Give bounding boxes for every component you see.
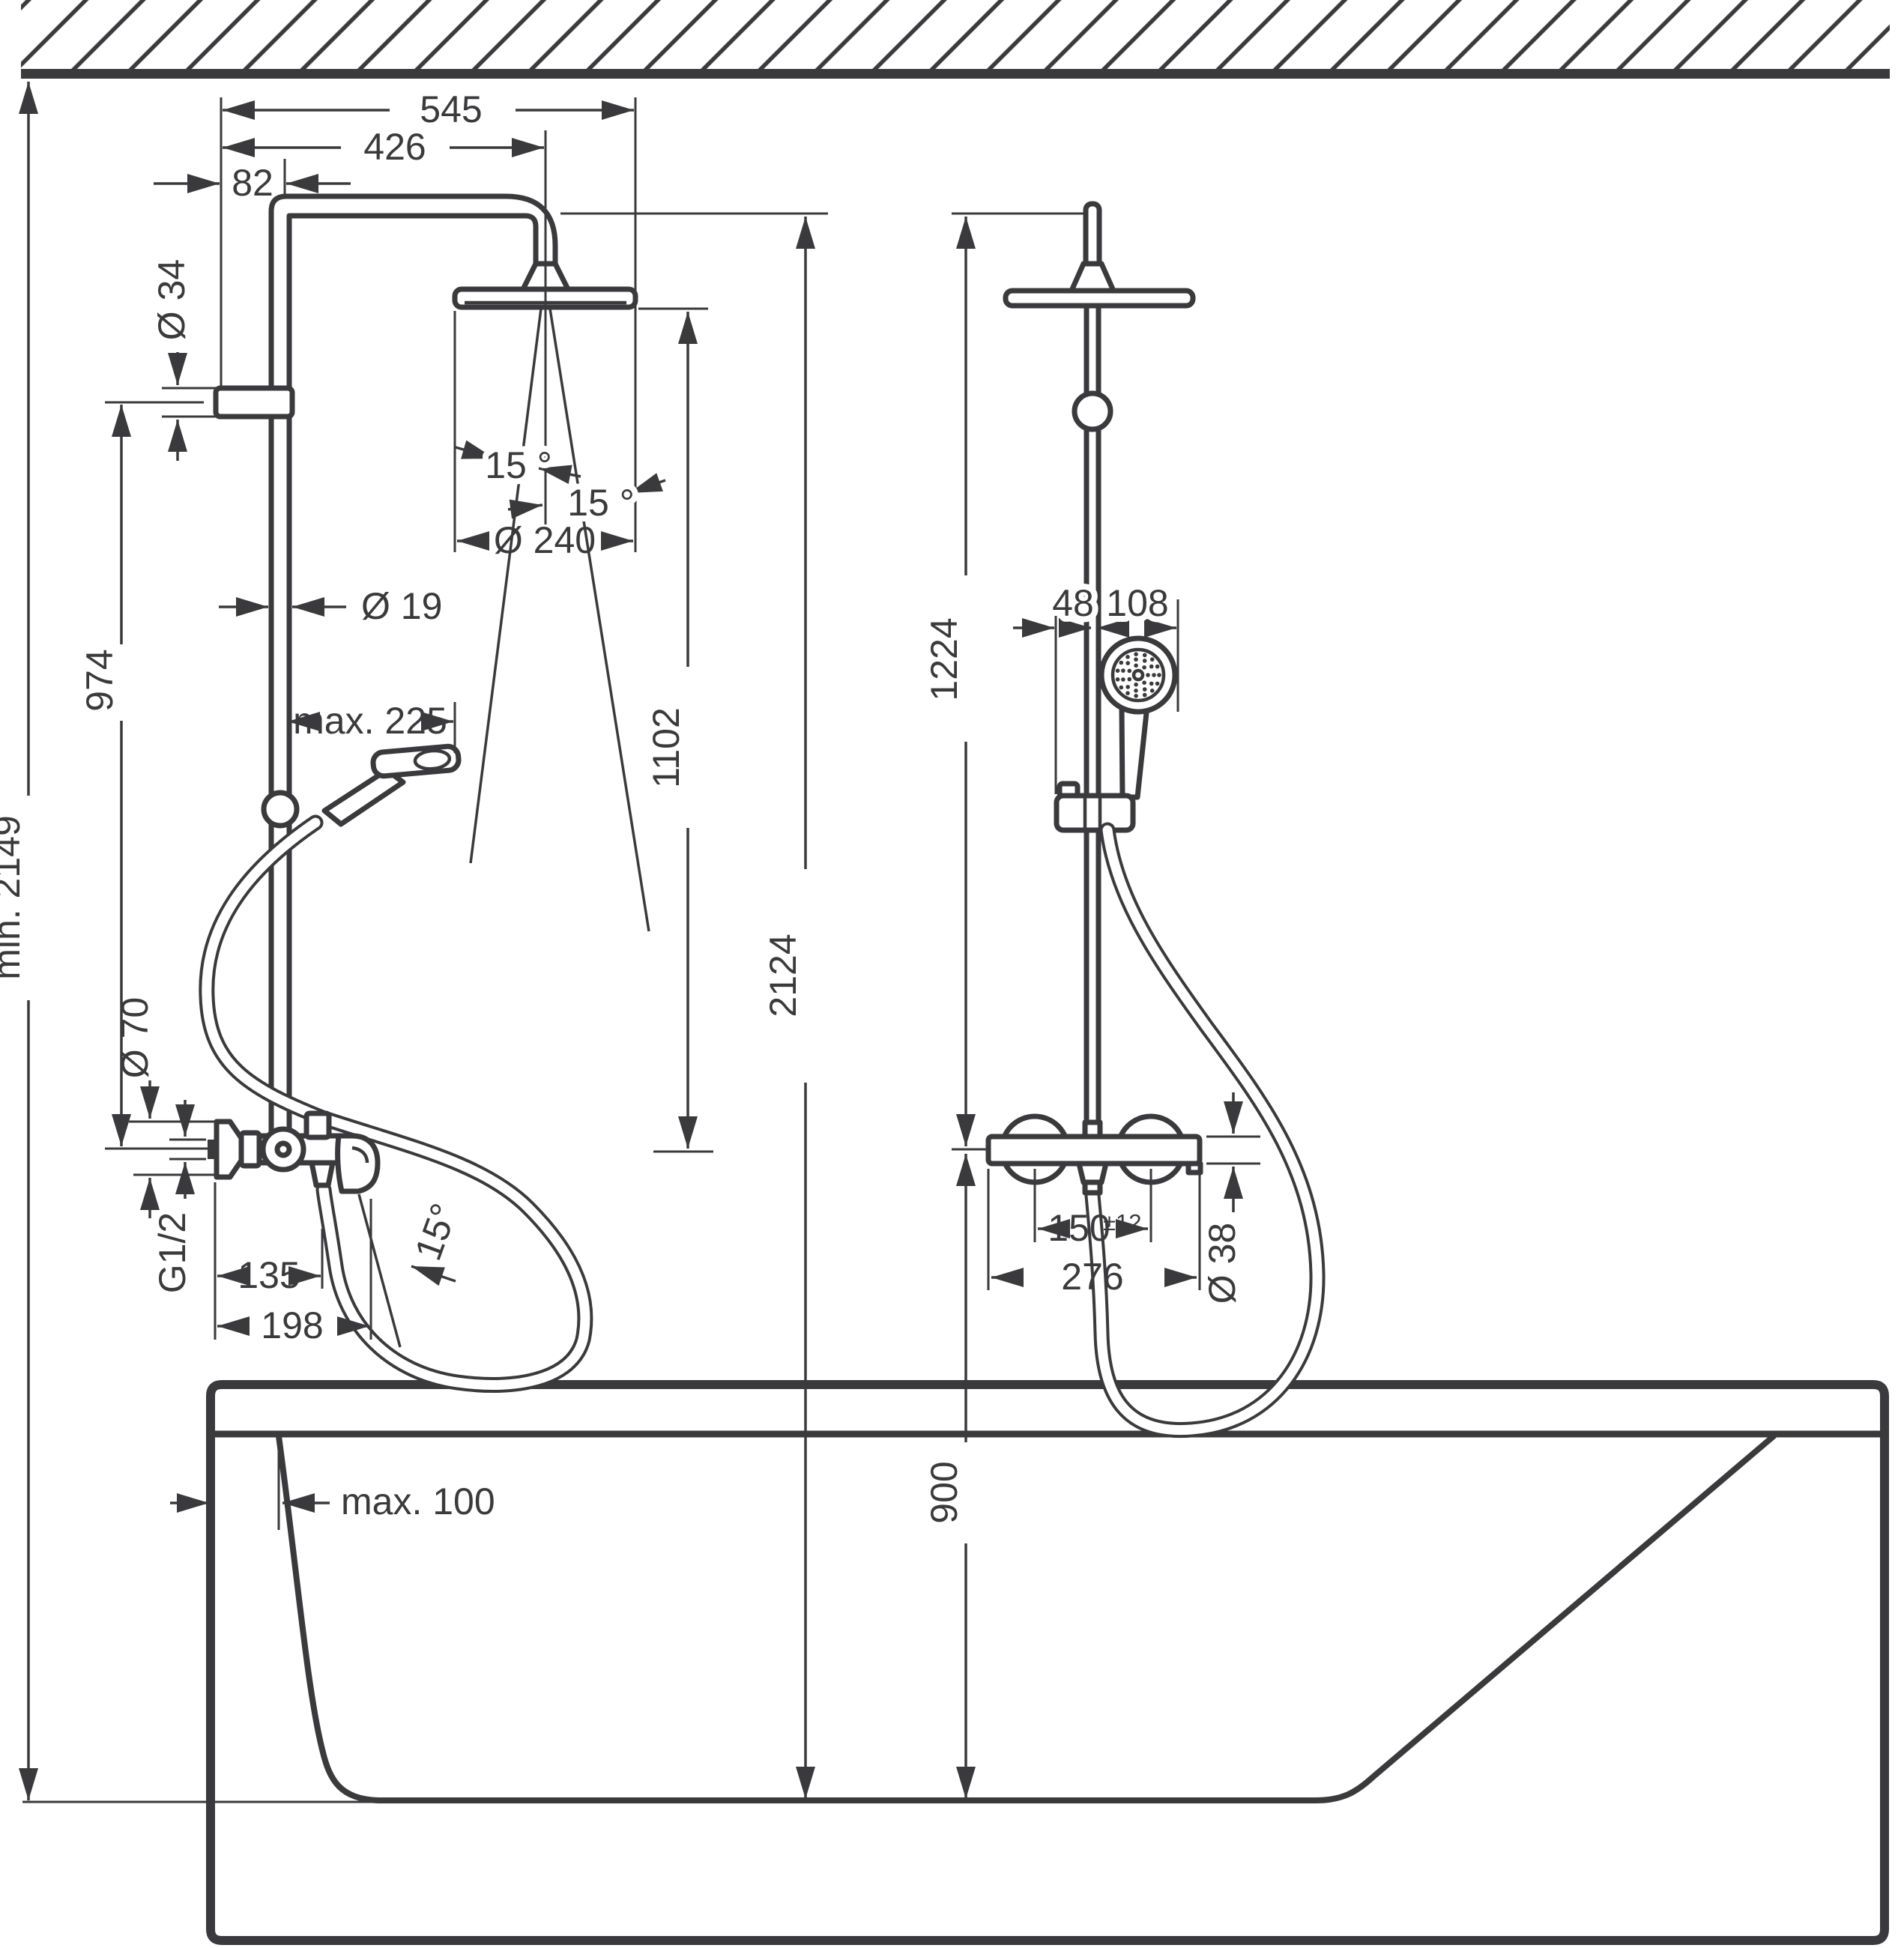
center-outlet (1079, 1164, 1106, 1182)
dim-label-545: 545 (420, 88, 482, 130)
dim-label-135: 135 (238, 1254, 300, 1296)
dim-label-1102: 1102 (645, 707, 687, 788)
swivel-ball-joint (1075, 393, 1110, 429)
showerhead-cone-front (1072, 264, 1113, 291)
handshower-handle-side (324, 770, 403, 824)
technical-drawing-page: min. 2149 545 426 82 Ø 34 974 Ø 19 (0, 0, 1904, 1948)
dim-label-15-right: 15 ° (567, 482, 635, 524)
dim-label-150-tolerance: ±12 (1103, 1209, 1142, 1235)
spray-line-left (471, 309, 541, 863)
arm-stub-front (1086, 204, 1099, 267)
spout-angle-arrow (411, 1266, 456, 1281)
handle-hub-side (277, 1143, 289, 1155)
shower-hose-side-core (207, 823, 585, 1385)
shower-front-view (988, 204, 1317, 1430)
dim-label-o70: Ø 70 (114, 997, 156, 1078)
dim-label-48: 48 (1052, 582, 1094, 624)
dim-label-276: 276 (1061, 1256, 1123, 1298)
thermostat-body (988, 1137, 1200, 1164)
holder-release-button (1060, 784, 1078, 796)
dim-label-max225: max. 225 (293, 700, 447, 742)
tub-spout (338, 1136, 378, 1191)
dim-label-426: 426 (363, 126, 426, 168)
dim-label-g12: G1/2 (151, 1212, 193, 1293)
dim-label-min2149: min. 2149 (0, 815, 28, 980)
dimension-annotations: min. 2149 545 426 82 Ø 34 974 Ø 19 (0, 82, 1260, 1802)
dim-label-o240: Ø 240 (494, 519, 596, 561)
hose-connector-side (312, 1163, 333, 1185)
bathtub-outline (211, 1385, 1885, 1941)
wall-bracket (216, 388, 292, 417)
dim-label-1224: 1224 (923, 617, 965, 701)
riser-connection-stub (1085, 1122, 1100, 1137)
shower-side-view (207, 196, 635, 1385)
dim-label-o38: Ø 38 (1201, 1223, 1243, 1304)
dim-label-o34: Ø 34 (151, 259, 193, 340)
bathtub (211, 1385, 1885, 1941)
dim-label-2124: 2124 (762, 934, 804, 1017)
escutcheon-cone (217, 1122, 241, 1177)
angle-arrow-2a (508, 505, 543, 509)
dim-label-15-left: 15 ° (485, 444, 552, 486)
dim-label-o19: Ø 19 (361, 585, 442, 627)
dim-label-198: 198 (261, 1304, 323, 1346)
dim-label-900: 900 (923, 1461, 965, 1523)
thermostat-front (988, 1116, 1200, 1193)
diverter-knob (306, 1113, 329, 1137)
slider-holder-ball (264, 793, 297, 826)
dim-label-150: 150 (1048, 1207, 1110, 1249)
handshower-handle-front (1122, 706, 1147, 797)
ceiling-line (21, 69, 1890, 79)
slider-holder-front (1057, 796, 1133, 830)
ceiling-hatch (21, 0, 1890, 79)
handshower-head-side (372, 745, 459, 777)
dim-label-974: 974 (79, 649, 121, 711)
dim-label-108: 108 (1106, 582, 1168, 624)
hose-nut-front (1085, 1182, 1100, 1193)
dim-label-max100: max. 100 (341, 1480, 495, 1522)
dim-label-15-spout: 15° (407, 1198, 465, 1265)
spray-line-right (550, 309, 649, 931)
union-nut (241, 1133, 259, 1166)
shower-hose-side-outline (207, 823, 585, 1385)
bathtub-basin (279, 1436, 1774, 1800)
dim-label-82: 82 (232, 162, 273, 204)
shower-system-dimension-drawing: min. 2149 545 426 82 Ø 34 974 Ø 19 (0, 0, 1904, 1948)
